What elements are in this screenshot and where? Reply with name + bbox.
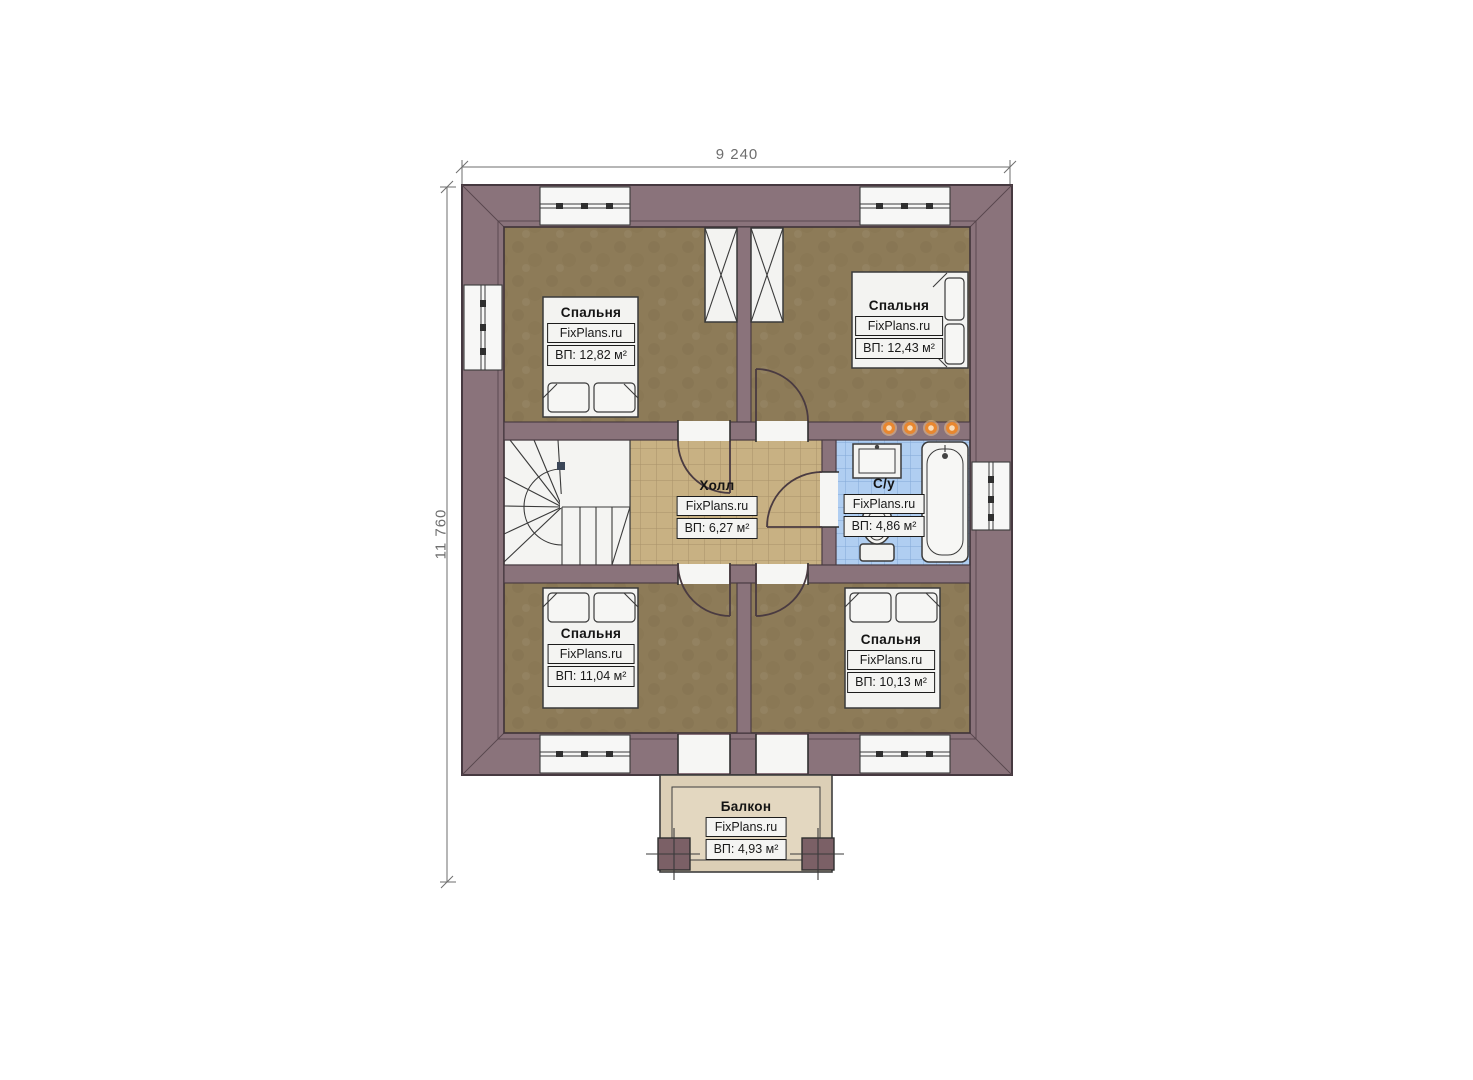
- wardrobe-right: [751, 228, 783, 322]
- room-label-bedroom-bottom-right: Спальня FixPlans.ru ВП: 10,13 м²: [847, 632, 935, 693]
- floor-plan-sheet: 9 240 11 760 Спальня FixPlans.ru ВП: 12,…: [0, 0, 1473, 1080]
- staircase: [504, 440, 630, 565]
- area-box: ВП: 12,82 м²: [547, 345, 635, 365]
- bathtub: [922, 442, 968, 562]
- window-top-right: [860, 187, 950, 225]
- area-box: ВП: 4,93 м²: [706, 839, 787, 859]
- room-label-bathroom: С/у FixPlans.ru ВП: 4,86 м²: [844, 476, 925, 537]
- brand-box: FixPlans.ru: [844, 494, 925, 514]
- window-left: [464, 285, 502, 370]
- area-box: ВП: 11,04 м²: [548, 666, 635, 686]
- brand-box: FixPlans.ru: [847, 650, 935, 670]
- area-box: ВП: 12,43 м²: [855, 338, 943, 358]
- room-label-balcony: Балкон FixPlans.ru ВП: 4,93 м²: [706, 799, 787, 860]
- window-bottom-right: [860, 735, 950, 773]
- room-name: Холл: [699, 478, 734, 493]
- area-box: ВП: 10,13 м²: [847, 672, 935, 692]
- brand-box: FixPlans.ru: [677, 496, 758, 516]
- dimension-height-label: 11 760: [433, 509, 450, 560]
- wardrobe-left: [705, 228, 737, 322]
- room-name: С/у: [873, 476, 895, 491]
- dimension-line-top: [456, 160, 1016, 184]
- brand-box: FixPlans.ru: [706, 817, 787, 837]
- brand-box: FixPlans.ru: [547, 323, 635, 343]
- brand-box: FixPlans.ru: [548, 644, 635, 664]
- window-right: [972, 462, 1010, 530]
- room-label-bedroom-top-right: Спальня FixPlans.ru ВП: 12,43 м²: [855, 298, 943, 359]
- area-box: ВП: 4,86 м²: [844, 516, 925, 536]
- room-label-hall: Холл FixPlans.ru ВП: 6,27 м²: [677, 478, 758, 539]
- room-name: Спальня: [561, 626, 621, 641]
- room-name: Балкон: [721, 799, 772, 814]
- room-label-bedroom-top-left: Спальня FixPlans.ru ВП: 12,82 м²: [547, 305, 635, 366]
- room-name: Спальня: [561, 305, 621, 320]
- brand-box: FixPlans.ru: [855, 316, 943, 336]
- window-bottom-left: [540, 735, 630, 773]
- area-box: ВП: 6,27 м²: [677, 518, 758, 538]
- room-name: Спальня: [869, 298, 929, 313]
- room-name: Спальня: [861, 632, 921, 647]
- room-label-bedroom-bottom-left: Спальня FixPlans.ru ВП: 11,04 м²: [548, 626, 635, 687]
- window-top-left: [540, 187, 630, 225]
- dimension-width-label: 9 240: [716, 146, 759, 163]
- sink: [853, 444, 901, 478]
